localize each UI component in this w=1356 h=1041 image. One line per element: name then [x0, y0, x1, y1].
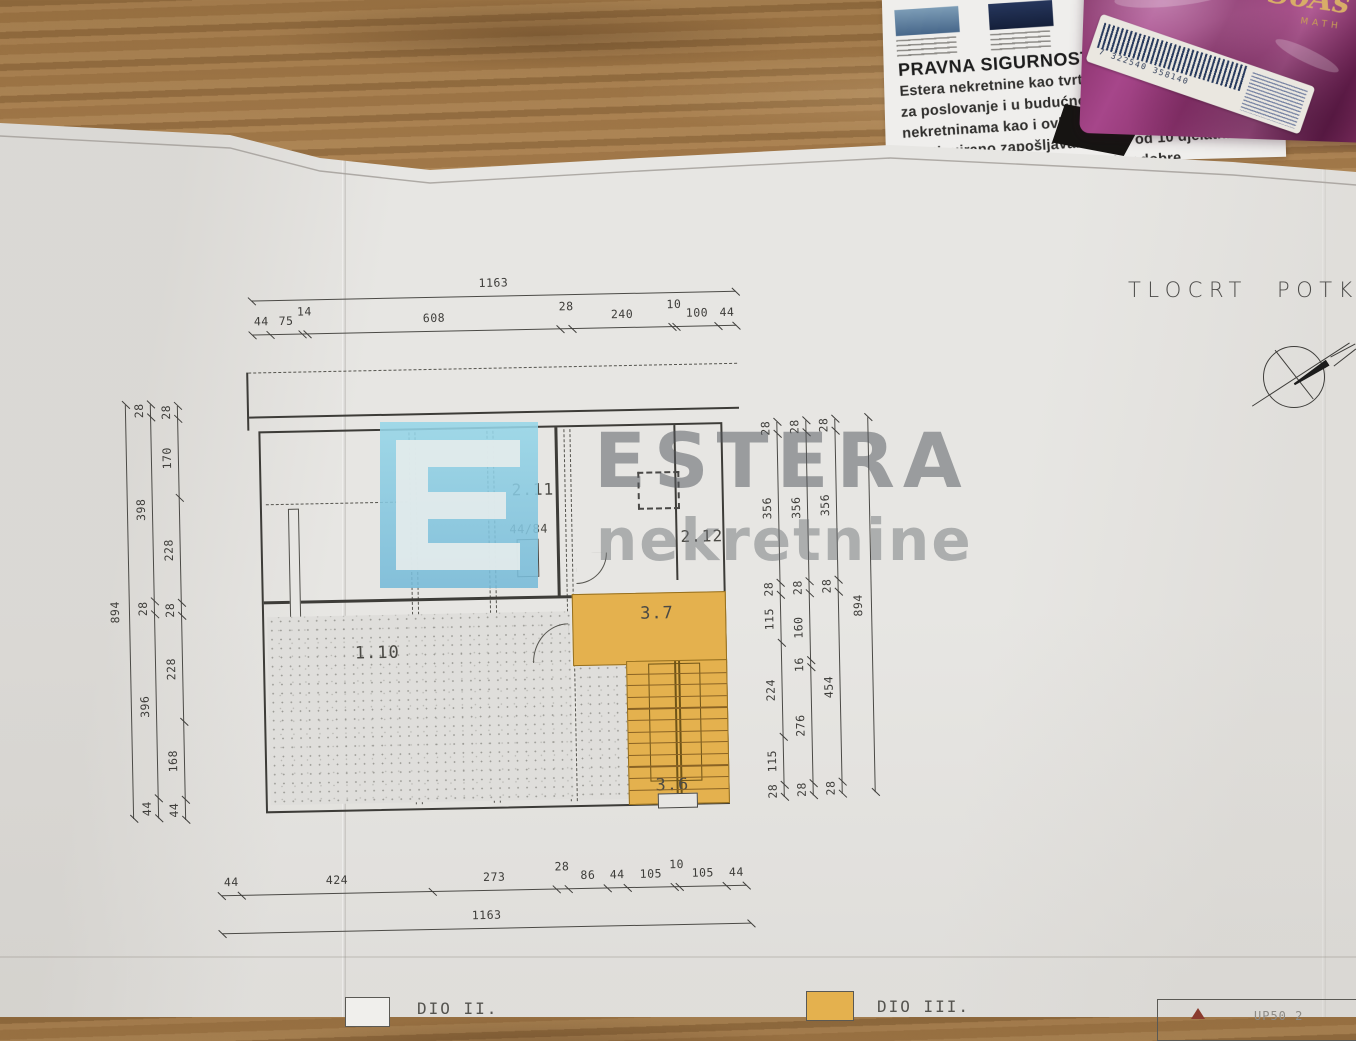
- dim-label: 228: [162, 539, 176, 562]
- dim-chain-top-segments: [252, 325, 736, 336]
- roof-edge-left: [246, 373, 249, 431]
- dim-chain-top-total: [252, 291, 736, 302]
- dim-label: 28: [159, 405, 173, 420]
- photo-of-floor-plan-on-desk: { "clipping": { "heading": "PRAVNA SIGUR…: [0, 0, 1356, 1017]
- dim-label: 396: [138, 695, 152, 718]
- dim-chain-right-1: [776, 422, 785, 797]
- dim-label: 115: [765, 750, 779, 773]
- stair-rail-outline: [648, 663, 702, 782]
- dim-label: 28: [819, 578, 833, 593]
- door-swing: [576, 552, 608, 584]
- legend-label-dio-ii: DIO II.: [417, 999, 498, 1018]
- stair-threshold: [658, 793, 698, 809]
- dim-label: 28: [761, 582, 775, 597]
- room-label-2-11: 2.11: [511, 479, 554, 499]
- dim-label: 16: [792, 657, 806, 672]
- dim-label: 273: [483, 870, 506, 884]
- dim-label: 168: [166, 750, 180, 773]
- dim-label: 44: [729, 865, 744, 879]
- dim-label: 454: [821, 676, 835, 699]
- floor-plan-drawing: 3.6 2.11 44/84 2.12 3.7 1.10 11634475146…: [0, 0, 1356, 1027]
- dim-label: 75: [278, 314, 293, 328]
- dim-label: 894: [851, 594, 865, 617]
- dim-label: 28: [554, 859, 569, 873]
- dim-label: 105: [640, 866, 663, 880]
- room-1-10-floor: [267, 611, 574, 805]
- room-label-1-10: 1.10: [355, 643, 400, 664]
- dim-label: 14: [297, 304, 312, 318]
- legend-label-dio-iii: DIO III.: [877, 997, 970, 1016]
- dim-label: 276: [793, 715, 807, 738]
- roof-outline-dashed: [248, 363, 737, 374]
- dim-label: 28: [823, 781, 837, 796]
- dim-label: 105: [691, 865, 714, 879]
- dim-label: 28: [163, 602, 177, 617]
- dim-label: 356: [789, 496, 803, 519]
- dim-label: 28: [816, 417, 830, 432]
- dim-chain-bottom-segments: [222, 885, 747, 897]
- window-symbol: [517, 539, 540, 577]
- dim-label: 115: [762, 608, 776, 631]
- title-block-text: UP50 2: [1254, 1009, 1303, 1023]
- corridor-floor: [576, 663, 629, 800]
- dim-label: 1163: [478, 275, 508, 290]
- room-label-3-7: 3.7: [640, 603, 674, 624]
- dim-label: 424: [326, 873, 349, 887]
- dim-label: 28: [766, 784, 780, 799]
- dim-label: 44: [167, 802, 181, 817]
- dim-label: 240: [611, 307, 634, 321]
- dim-label: 894: [108, 601, 122, 624]
- dim-label: 28: [758, 421, 772, 436]
- dim-label: 28: [787, 419, 801, 434]
- interior-wall: [554, 427, 560, 597]
- sheet-title: TLOCRT POTKROVLJ: [1128, 278, 1356, 302]
- dim-label: 28: [136, 601, 150, 616]
- window-dimension-label: 44/84: [509, 522, 548, 537]
- dim-label: 28: [790, 580, 804, 595]
- room-label-2-12: 2.12: [680, 526, 723, 546]
- triangle-marker: [1191, 1008, 1205, 1019]
- dim-chain-bottom-total: [222, 923, 751, 935]
- dim-chain-right-3: [834, 419, 843, 794]
- dim-label: 356: [818, 494, 832, 517]
- dim-label: 44: [224, 875, 239, 889]
- dim-label: 10: [666, 297, 681, 311]
- dim-chain-left-total: [125, 405, 135, 819]
- dim-label: 28: [795, 782, 809, 797]
- legend-swatch-dio-ii: [345, 997, 390, 1027]
- dim-label: 224: [763, 679, 777, 702]
- dim-label: 28: [559, 299, 574, 313]
- dim-label: 356: [760, 497, 774, 520]
- dim-label: 86: [580, 868, 595, 882]
- north-compass-icon: [1245, 322, 1356, 434]
- staircase-3-6: 3.6: [626, 659, 730, 805]
- dim-label: 228: [164, 658, 178, 681]
- dim-label: 608: [423, 311, 446, 325]
- dim-chain-right-total: [867, 417, 876, 792]
- eave-line: [249, 407, 739, 419]
- dim-label: 44: [254, 314, 269, 328]
- skylight-dashed: [637, 471, 680, 510]
- dim-label: 44: [140, 801, 154, 816]
- dim-label: 170: [160, 447, 174, 470]
- interior-wall: [264, 595, 576, 604]
- dim-label: 398: [134, 499, 148, 522]
- title-block-box: UP50 2: [1157, 999, 1356, 1041]
- dim-label: 44: [610, 867, 625, 881]
- outer-walls: 3.6 2.11 44/84 2.12 3.7 1.10: [258, 422, 730, 813]
- dim-label: 44: [719, 305, 734, 319]
- dim-label: 1163: [472, 908, 502, 923]
- dim-chain-right-2: [805, 420, 814, 795]
- height-line-dashed: [266, 501, 408, 505]
- dim-label: 10: [669, 857, 684, 871]
- dim-label: 160: [791, 616, 805, 639]
- dim-label: 28: [132, 404, 146, 419]
- dim-label: 100: [686, 305, 709, 319]
- landing-3-7: [572, 591, 727, 666]
